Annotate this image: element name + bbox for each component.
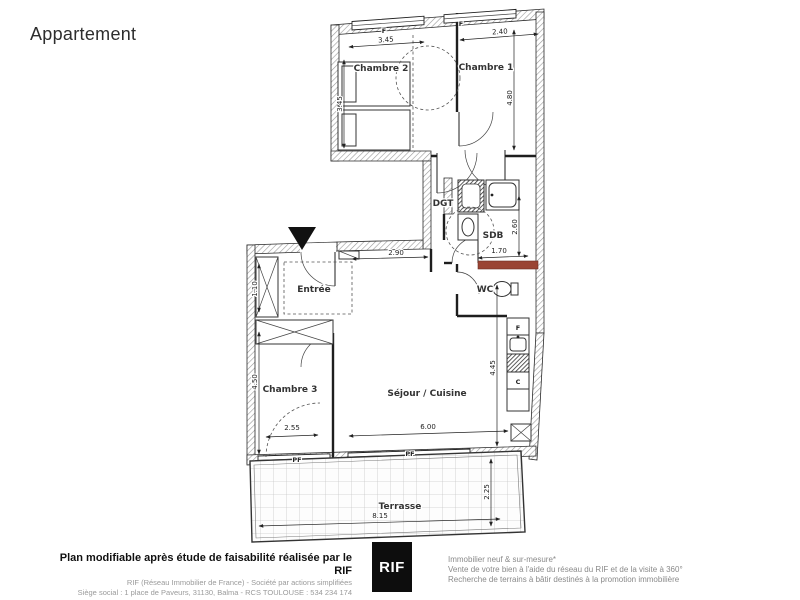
dim-sdb-width: 1.70	[491, 247, 507, 255]
footer-right-block: Immobilier neuf & sur-mesure* Vente de v…	[448, 555, 683, 585]
dim-sdb-height: 2.60	[511, 219, 519, 235]
load-bearing-wall-marker	[478, 261, 538, 269]
cabinet-symbol-2	[507, 389, 529, 411]
entrance-door-arc	[301, 252, 335, 286]
page: Appartement	[0, 0, 800, 600]
dim-chambre3-height: 4.50	[251, 374, 259, 390]
hob-symbol	[507, 354, 529, 372]
dim-hall-width: 2.90	[388, 249, 404, 257]
rif-logo-text: RIF	[379, 559, 405, 576]
room-label-terrasse: Terrasse	[379, 502, 422, 512]
sdb-door-arc	[452, 237, 478, 263]
dim-sejour-height: 4.45	[489, 360, 497, 376]
tag-cabinet: C	[516, 378, 521, 386]
tag-pf-right: PF	[405, 450, 414, 458]
wc-door-arc	[457, 272, 479, 294]
closet-symbol-horizontal	[256, 320, 333, 344]
floor-plan: 3.45 2.40 3.45 4.80 2.90 2.60 1.70 1.10 …	[0, 0, 800, 600]
tag-fridge: F	[516, 324, 520, 332]
dim-terrasse-depth: 2.25	[483, 484, 491, 500]
room-label-sdb: SDB	[483, 231, 504, 241]
dim-chambre2-width: 3.45	[378, 35, 394, 44]
dim-chambre1-width: 2.40	[492, 27, 508, 36]
chambre1-door-arc	[459, 112, 493, 146]
footer-address-line: Siège social : 1 place de Paveurs, 31130…	[58, 588, 352, 598]
dim-chambre1-height: 4.80	[506, 90, 514, 106]
room-label-chambre1: Chambre 1	[459, 63, 514, 73]
footer-service-line-1: Immobilier neuf & sur-mesure*	[448, 555, 683, 565]
dim-chambre3-door: 2.55	[284, 424, 300, 432]
dim-entree-closet: 1.10	[251, 281, 259, 297]
dim-chambre2-height: 3.45	[336, 96, 344, 112]
room-label-dgt: DGT	[433, 199, 455, 209]
room-label-sejour: Séjour / Cuisine	[387, 388, 466, 399]
tag-pf-left: PF	[292, 456, 301, 464]
rif-logo: RIF	[372, 542, 412, 592]
footer-service-line-2: Vente de votre bien à l'aide du réseau d…	[448, 565, 683, 575]
column-symbol	[511, 424, 531, 441]
tag-window-f1: F	[382, 27, 386, 35]
footer-disclaimer: Plan modifiable après étude de faisabili…	[58, 552, 352, 578]
dim-terrasse-width: 8.15	[372, 512, 388, 520]
room-label-chambre2: Chambre 2	[354, 64, 409, 74]
room-label-wc: WC	[477, 285, 494, 295]
toilet-symbol	[493, 282, 511, 297]
dim-sejour-width: 6.00	[420, 423, 436, 431]
footer-company-line: RIF (Réseau Immobilier de France) - Soci…	[58, 578, 352, 588]
footer-service-line-3: Recherche de terrains à bâtir destinés à…	[448, 575, 683, 585]
room-label-chambre3: Chambre 3	[263, 385, 318, 395]
tag-window-f2: F	[459, 20, 463, 28]
footer-left-block: Plan modifiable après étude de faisabili…	[58, 552, 352, 597]
room-label-entree: Entrée	[297, 284, 331, 295]
